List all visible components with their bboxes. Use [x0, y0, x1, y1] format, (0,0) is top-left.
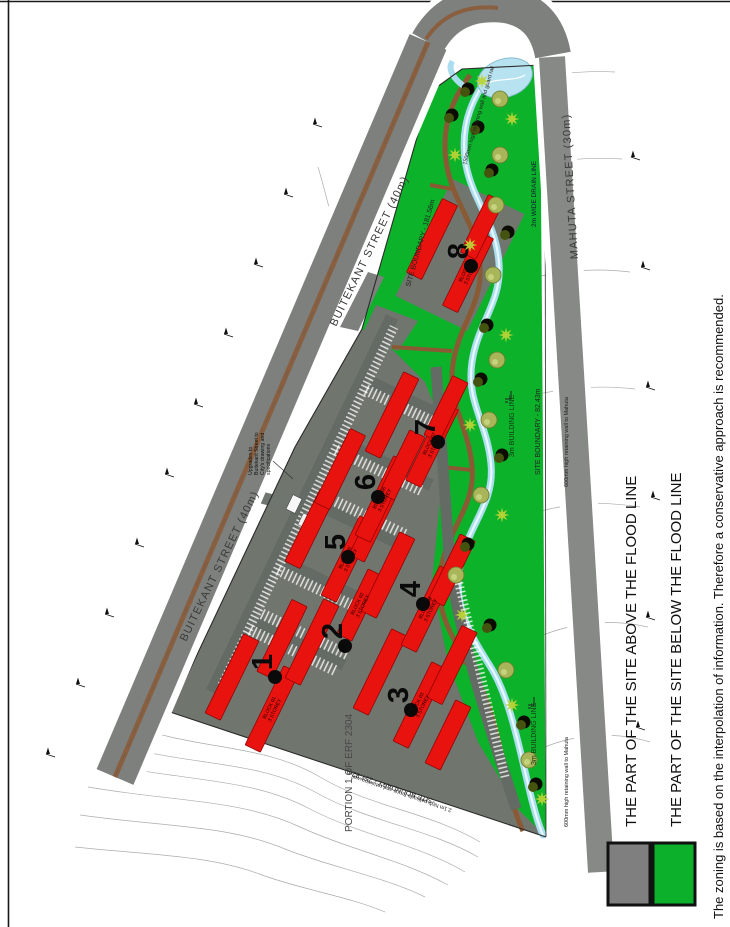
- survey-flag-icon: [646, 381, 655, 391]
- drain-line-label: 2m WIDE DRAIN LINE: [531, 160, 538, 227]
- block-numeral: 7: [410, 419, 442, 435]
- survey-flag-icon: [284, 188, 293, 198]
- shrub-star-symbol: [463, 238, 478, 253]
- site-development-plan-page: 1BLOCK 013 STOREY2BLOCK 023 STOREY3BLOCK…: [0, 0, 730, 927]
- retaining-wall-lower-right-label: 600mm high retaining wall to Mahuta: [564, 736, 570, 827]
- building-line-label-lower: 3m BUILDING LINE: [531, 702, 538, 765]
- legend-label-above-flood: THE PART OF THE SITE ABOVE THE FLOOD LIN…: [623, 476, 640, 827]
- building-line-label-right: 3m BUILDING LINE: [509, 394, 516, 457]
- block-numeral: 4: [395, 581, 427, 597]
- survey-flag-icon: [76, 678, 85, 688]
- survey-flag-icon: [46, 748, 55, 758]
- shrub-star-symbol: [463, 418, 478, 433]
- shrub-star-symbol: [505, 112, 520, 127]
- survey-flag-icon: [254, 258, 263, 268]
- svg-text:specifications: specifications: [266, 443, 272, 475]
- block-numeral: 2: [317, 623, 349, 639]
- shrub-star-symbol: [499, 328, 514, 343]
- survey-flag-icon: [105, 608, 114, 618]
- legend-swatch-below-flood: [653, 843, 695, 905]
- zoning-footnote: The zoning is based on the interpolation…: [711, 294, 726, 919]
- legend: THE PART OF THE SITE ABOVE THE FLOOD LIN…: [608, 472, 695, 905]
- rotated-plan: 1BLOCK 013 STOREY2BLOCK 023 STOREY3BLOCK…: [46, 4, 726, 919]
- survey-flag-icon: [646, 611, 655, 621]
- boundary-label-se: SITE BOUNDARY - 82.43m: [535, 388, 542, 475]
- survey-flag-icon: [194, 398, 203, 408]
- shrub-star-symbol: [455, 608, 470, 623]
- block-numeral: 1: [247, 654, 279, 670]
- survey-flag-icon: [651, 491, 660, 501]
- shrub-star-symbol: [495, 508, 510, 523]
- plan-canvas: 1BLOCK 013 STOREY2BLOCK 023 STOREY3BLOCK…: [0, 0, 730, 927]
- legend-swatch-above-flood: [608, 843, 650, 905]
- survey-flag-icon: [641, 261, 650, 271]
- shrub-star-symbol: [535, 792, 550, 807]
- survey-flag-icon: [224, 328, 233, 338]
- survey-flag-icon: [631, 151, 640, 161]
- legend-label-below-flood: THE PART OF THE SITE BELOW THE FLOOD LIN…: [668, 472, 685, 827]
- survey-flag-icon: [135, 538, 144, 548]
- shrub-star-symbol: [448, 148, 463, 163]
- block-numeral: 6: [350, 474, 382, 490]
- shrub-star-symbol: [505, 698, 520, 713]
- block-numeral-dot: [338, 639, 352, 653]
- block-numeral-dot: [268, 670, 282, 684]
- block-numeral: 3: [383, 687, 415, 703]
- survey-flag-icon: [313, 118, 322, 128]
- retaining-wall-right-label: 600mm high retaining wall to Mahuta: [564, 396, 570, 487]
- survey-flag-icon: [165, 468, 174, 478]
